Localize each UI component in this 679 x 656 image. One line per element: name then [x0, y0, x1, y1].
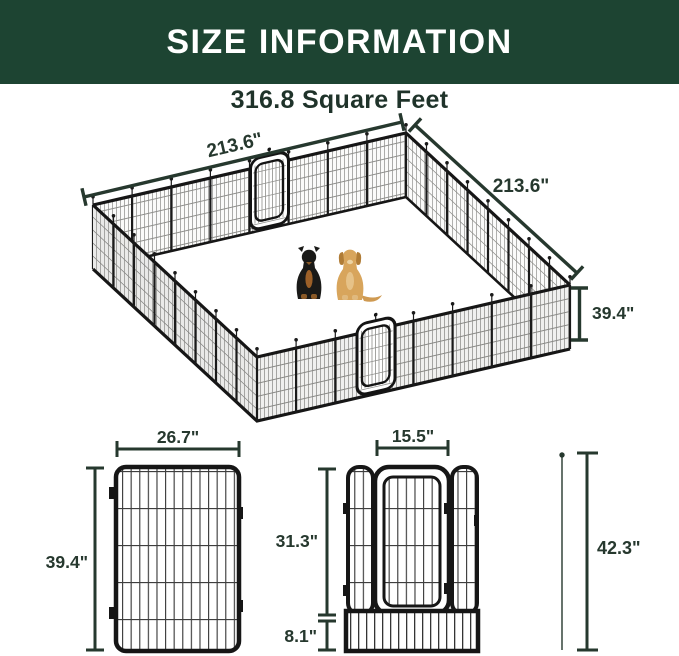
dim-door-width: 15.5" — [377, 426, 448, 456]
dim-base-height: 8.1" — [284, 621, 336, 650]
header-banner: SIZE INFORMATION — [0, 0, 679, 84]
base-height-label: 8.1" — [284, 626, 317, 646]
panel-drawing — [116, 467, 239, 651]
pen-height-label: 39.4" — [592, 303, 634, 323]
rottweiler-dog — [297, 246, 322, 299]
dim-door-height: 31.3" — [276, 469, 336, 615]
dim-panel-width: 26.7" — [117, 427, 239, 457]
door-width-label: 15.5" — [392, 426, 434, 446]
size-information-page: SIZE INFORMATION 316.8 Square Feet — [0, 0, 679, 656]
panel-front-view: 26.7" 39.4" — [46, 427, 243, 651]
pen-side-right-label: 213.6" — [493, 176, 550, 197]
ground-stake — [559, 452, 564, 650]
total-height-label: 42.3" — [597, 538, 641, 558]
area-total-label: 316.8 Square Feet — [0, 86, 679, 115]
dim-pen-height: 39.4" — [571, 288, 634, 340]
panel-width-label: 26.7" — [157, 427, 199, 447]
door-side-panel-left — [348, 467, 373, 614]
dim-total-height: 42.3" — [577, 453, 641, 650]
door-side-panel-right — [452, 467, 477, 614]
size-diagram: 213.6" 213.6" 39.4" — [0, 84, 679, 656]
door-panel-front-view: 15.5" 31.3" 8.1" 42.3 — [276, 426, 641, 651]
door-height-label: 31.3" — [276, 531, 318, 551]
dim-panel-height: 39.4" — [46, 468, 104, 650]
pen-isometric-view: 213.6" 213.6" 39.4" — [82, 113, 634, 421]
golden-retriever-dog — [337, 250, 382, 302]
page-title: SIZE INFORMATION — [166, 23, 512, 62]
pen-front-door — [357, 308, 395, 396]
panel-height-label: 39.4" — [46, 552, 88, 572]
door-base-section — [346, 611, 478, 651]
door-inner-frame — [384, 477, 440, 606]
